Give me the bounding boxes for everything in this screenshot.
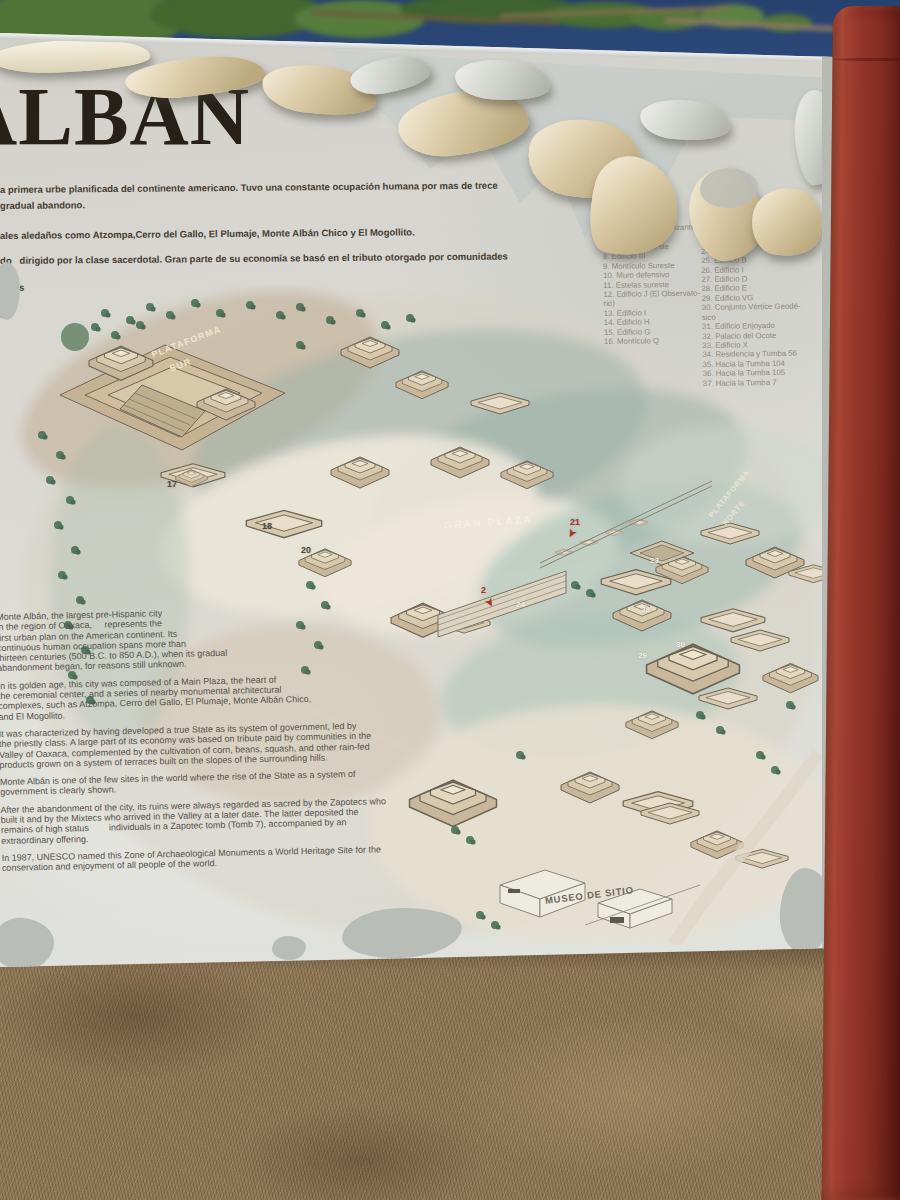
map-marker: 29 (638, 651, 647, 660)
paragraph: In its golden age, this city was compose… (0, 672, 386, 722)
map-marker: 20 (301, 545, 311, 555)
english-description-text: Monte Albán, the largest pre-Hispanic ci… (0, 603, 390, 880)
map-marker: 30 (676, 640, 685, 649)
text-line: gradual abandono. (0, 199, 85, 211)
red-metal-pole (822, 6, 900, 1200)
map-marker: 2 (481, 585, 486, 595)
legend-line: 16. Montículo Q (604, 336, 704, 347)
text-line: do dirigido por la clase sacerdotal. Gra… (0, 251, 508, 266)
map-marker: 17 (167, 479, 177, 489)
paragraph: In 1987, UNESCO named this Zone of Archa… (1, 844, 389, 873)
paragraph: Monte Albán is one of the few sites in t… (0, 768, 388, 797)
paragraph: It was characterized by having developed… (0, 720, 387, 770)
map-marker: 28 (641, 605, 650, 614)
map-marker: 24 (516, 600, 525, 609)
paragraph: After the abandonment of the city, its r… (0, 796, 389, 846)
text-line: a primera urbe planificada del continent… (0, 180, 498, 195)
text-line: ales aledaños como Atzompa,Cerro del Gal… (0, 226, 415, 241)
torn-paper-flap (0, 37, 151, 75)
paragraph: Monte Albán, the largest pre-Hispanic ci… (0, 603, 385, 674)
map-marker: 21 (570, 517, 580, 527)
map-marker: 23 (650, 556, 659, 565)
peeled-patch (272, 936, 306, 960)
map-marker: 18 (262, 521, 272, 531)
legend-line: 37. Hacia la Tumba 7 (703, 377, 835, 388)
dry-grass-ground (0, 938, 900, 1200)
information-sign-board: ALBÁN a primera urbe planificada del con… (0, 0, 840, 975)
